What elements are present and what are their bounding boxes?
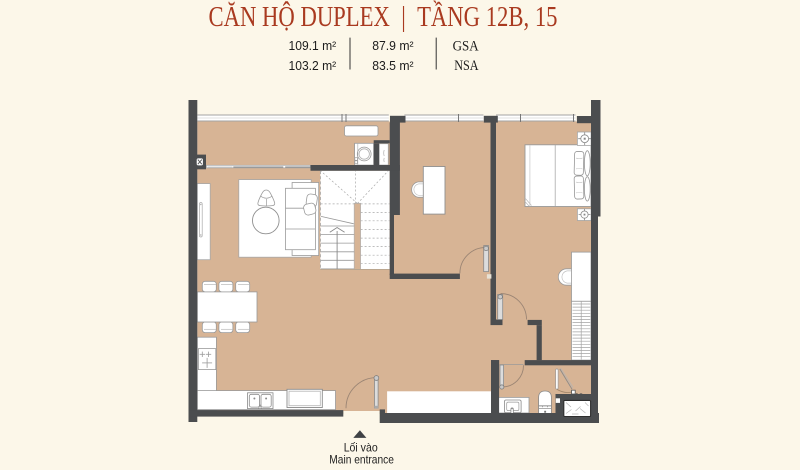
svg-text:NSA: NSA	[454, 58, 479, 74]
svg-text:109.1 m²: 109.1 m²	[289, 38, 337, 53]
svg-text:GSA: GSA	[453, 38, 479, 54]
svg-text:Main entrance: Main entrance	[329, 453, 394, 467]
svg-text:CĂN HỘ DUPLEX | TẦNG 12B, 15: CĂN HỘ DUPLEX | TẦNG 12B, 15	[209, 0, 558, 33]
svg-text:103.2 m²: 103.2 m²	[289, 58, 337, 73]
svg-text:83.5 m²: 83.5 m²	[372, 58, 414, 73]
svg-text:87.9 m²: 87.9 m²	[372, 38, 414, 53]
